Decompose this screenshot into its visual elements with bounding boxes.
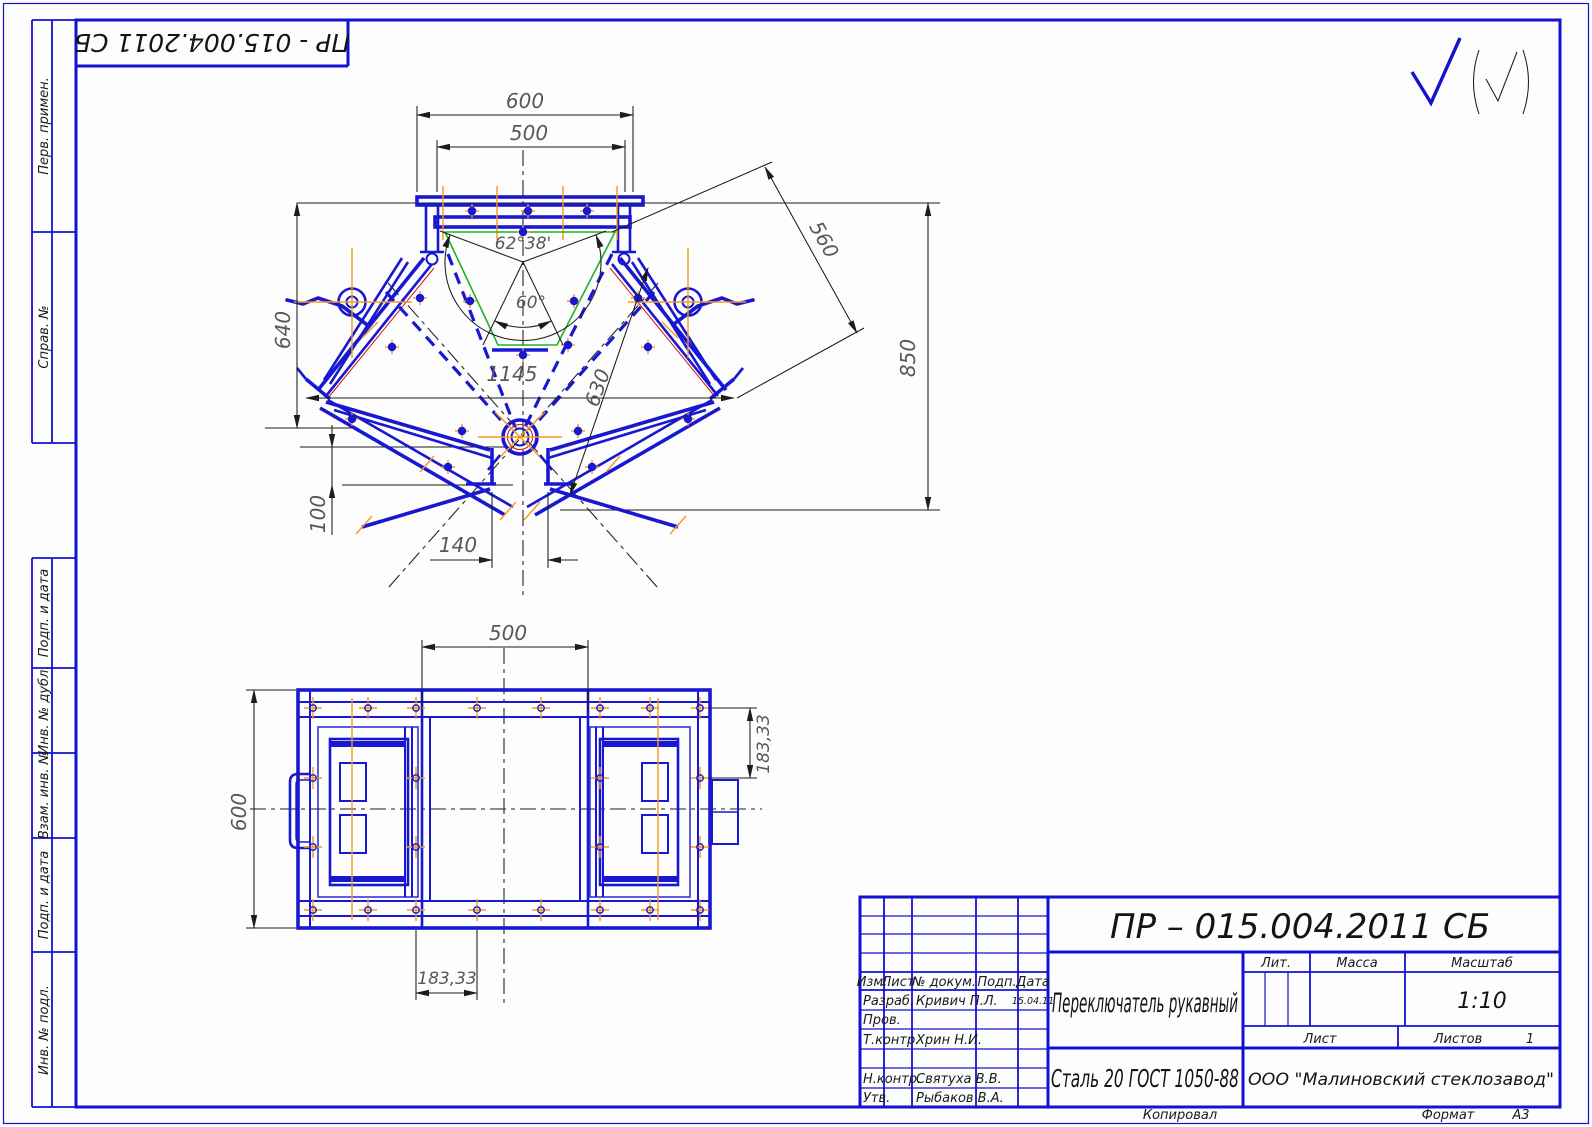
tb-row-razrab-date: 15.04.11 [1012, 996, 1054, 1007]
drawing-sheet: Перв. примен. Справ. № Подп. и дата Инв.… [0, 0, 1592, 1127]
drawing-canvas: Перв. примен. Справ. № Подп. и дата Инв.… [0, 0, 1592, 1127]
dim-600-top: 600 [506, 89, 544, 113]
tb-part-name: Переключатель рукавный [1052, 988, 1238, 1019]
tb-header-dokum: № докум. [911, 975, 976, 990]
tb-row-nkontr-role: Н.контр. [863, 1072, 921, 1087]
close-paren-icon [1523, 50, 1529, 114]
dim-850: 850 [896, 339, 920, 377]
tb-header-lit: Лит. [1260, 956, 1291, 971]
footer-format-label: Формат [1422, 1108, 1475, 1123]
tb-header-podp: Подп. [977, 975, 1016, 990]
tb-row-nkontr-name: Святуха В.В. [916, 1072, 1002, 1087]
tb-header-list2: Лист [1303, 1032, 1337, 1047]
margin-label-podp-data-2: Подп. и дата [37, 851, 52, 940]
margin-label-podp-data-1: Подп. и дата [37, 569, 52, 658]
tb-row-utv-name: Рыбаков В.А. [916, 1091, 1004, 1106]
tb-row-razrab-role: Разраб. [863, 994, 914, 1009]
roughness-check-icon [1412, 38, 1460, 103]
margin-label-sprav-no: Справ. № [37, 305, 52, 368]
tb-header-list: Лист [881, 975, 915, 990]
tb-row-razrab-name: Кривич П.Л. [916, 994, 998, 1009]
top-stamp: ПР - 015.004.2011 СБ [74, 20, 350, 66]
tb-company: ООО "Малиновский стеклозавод" [1248, 1070, 1554, 1090]
margin-label-vzam-inv: Взам. инв. № [37, 751, 52, 839]
margin-label-perv-primen: Перв. примен. [37, 77, 52, 175]
left-lever [287, 248, 412, 384]
dim-640: 640 [271, 311, 295, 349]
tb-row-utv-role: Утв. [863, 1091, 890, 1106]
tb-header-massa: Масса [1336, 956, 1377, 971]
tb-header-masshtab: Масштаб [1451, 956, 1513, 971]
tb-sheets-value: 1 [1526, 1032, 1534, 1047]
stamp-doc-number: ПР - 015.004.2011 СБ [74, 28, 350, 57]
dim-500-plan: 500 [489, 621, 527, 645]
dim-angle-60: 60° [516, 293, 546, 313]
tb-header-listov: Листов [1433, 1032, 1483, 1047]
dim-angle-62-38: 62°38' [495, 234, 551, 254]
dim-183-33-right: 183,33 [754, 714, 774, 773]
dim-500-top: 500 [510, 121, 548, 145]
sheet-footer: Копировал Формат А3 [1143, 1108, 1530, 1123]
dim-630: 630 [580, 366, 615, 410]
dim-560: 560 [804, 217, 844, 262]
dim-140: 140 [439, 533, 477, 557]
roughness-marks [1412, 38, 1529, 114]
title-block: Изм. Лист № докум. Подп. Дата Разраб. Кр… [857, 897, 1560, 1107]
roughness-check-alt-icon [1486, 52, 1517, 101]
tb-material: Сталь 20 ГОСТ 1050-88 [1051, 1064, 1239, 1093]
footer-kopiroval: Копировал [1143, 1108, 1217, 1123]
tb-row-prov-role: Пров. [863, 1013, 901, 1028]
tb-scale-value: 1:10 [1457, 989, 1506, 1014]
open-paren-icon [1474, 50, 1480, 114]
margin-label-inv-podl: Инв. № подл. [37, 985, 52, 1075]
plan-view: 500 600 183,33 183,33 [227, 621, 774, 1005]
tb-row-tkontr-role: Т.контр. [863, 1033, 919, 1048]
margin-column: Перв. примен. Справ. № Подп. и дата Инв.… [32, 20, 76, 1107]
dim-183-33-bottom: 183,33 [417, 969, 476, 989]
dim-1145: 1145 [487, 362, 538, 386]
dim-100: 100 [306, 495, 330, 533]
front-view: 600 500 62°38' 60° 1145 640 850 560 630 … [265, 89, 940, 600]
tb-doc-number: ПР – 015.004.2011 СБ [1110, 907, 1490, 947]
footer-format-value: А3 [1511, 1108, 1529, 1123]
dim-600-plan: 600 [227, 793, 251, 831]
tb-header-data: Дата [1015, 975, 1050, 990]
margin-label-inv-dubl: Инв. № дубл. [37, 666, 52, 755]
tb-row-tkontr-name: Хрин Н.И. [915, 1033, 982, 1048]
